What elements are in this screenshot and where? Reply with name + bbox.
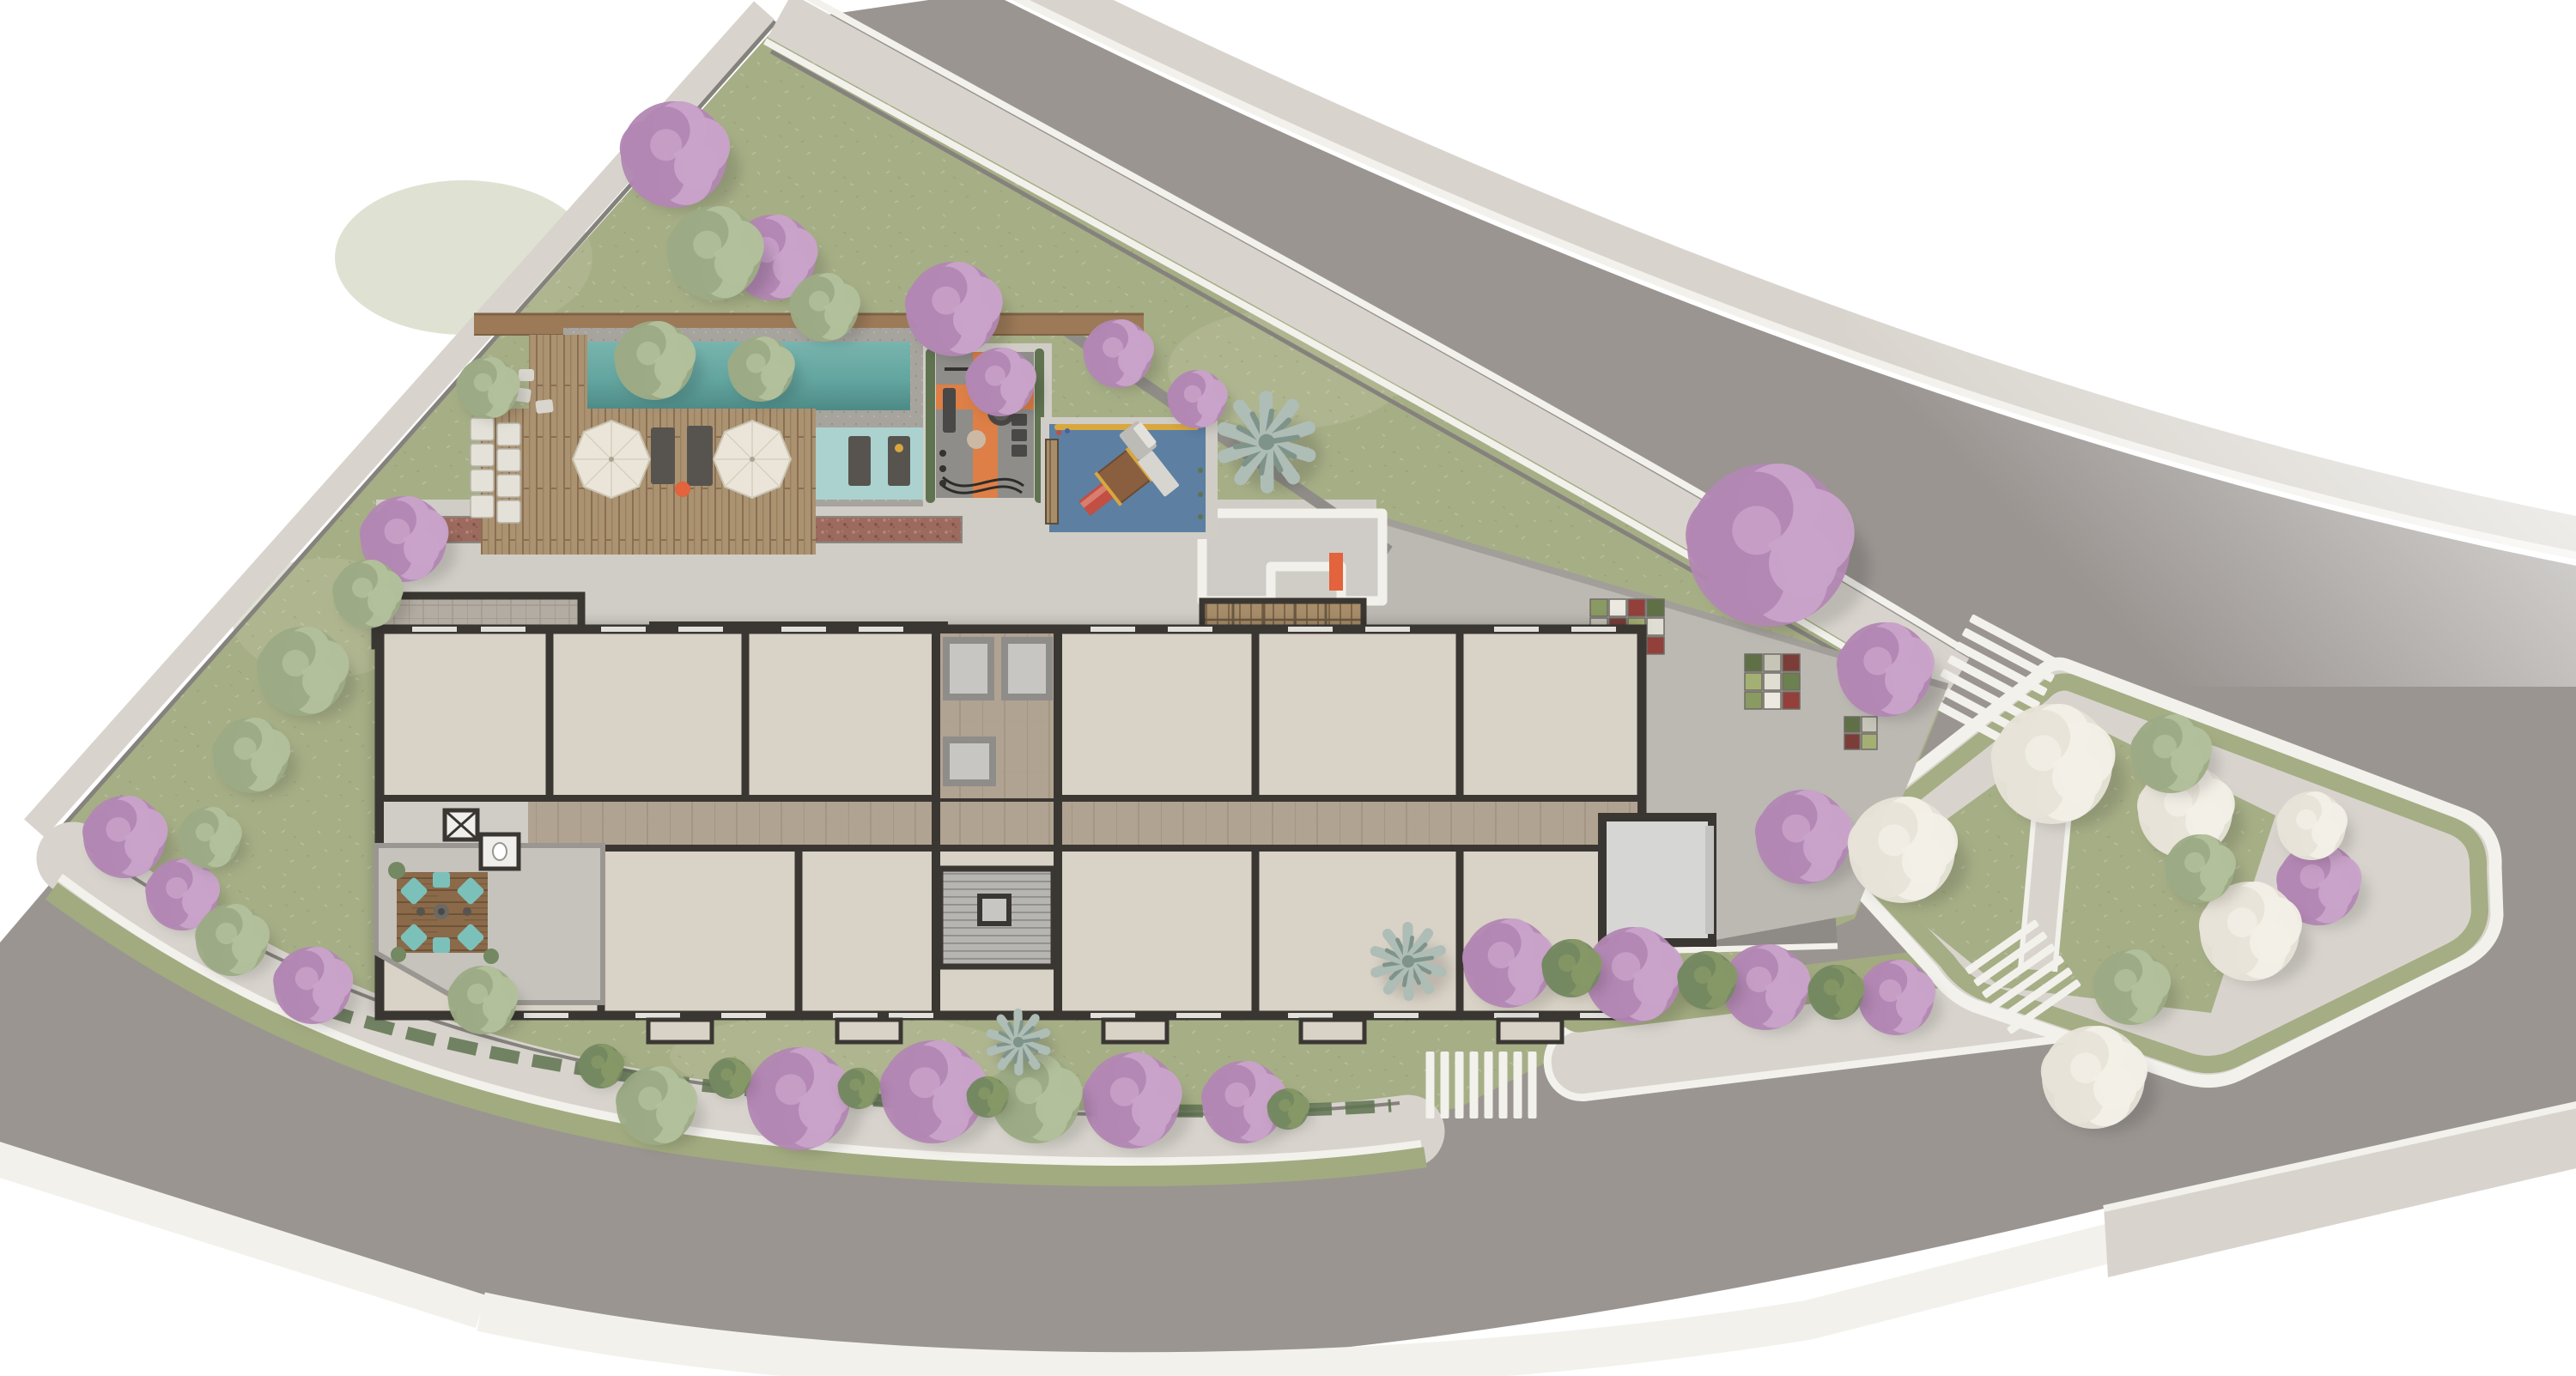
site-plan-rendering bbox=[0, 0, 2576, 1376]
window-opening bbox=[1288, 1013, 1333, 1018]
window-opening bbox=[1288, 627, 1333, 632]
wet-deck-lounger-1 bbox=[848, 436, 871, 486]
window-opening bbox=[781, 627, 826, 632]
balcony-sill bbox=[1498, 1020, 1562, 1042]
elevator-shaft-3 bbox=[943, 736, 996, 786]
window-opening bbox=[1168, 627, 1212, 632]
gym-beanbag bbox=[967, 430, 986, 449]
gym-hedge-left bbox=[926, 349, 935, 503]
balcony-sill bbox=[1103, 1020, 1167, 1042]
solarium-pad bbox=[471, 418, 494, 440]
wet-deck-lounger-2 bbox=[888, 436, 910, 486]
deck-lounger-1 bbox=[651, 427, 675, 484]
window-opening bbox=[1091, 1013, 1135, 1018]
window-opening bbox=[1494, 1013, 1539, 1018]
balcony-sill bbox=[648, 1020, 712, 1042]
solarium-pad bbox=[471, 444, 494, 466]
playground bbox=[1041, 417, 1218, 541]
balcony-sill bbox=[837, 1020, 901, 1042]
garden-bed bbox=[1745, 654, 1800, 709]
entrance-door bbox=[1329, 553, 1343, 591]
elevator-shaft-1 bbox=[943, 637, 994, 700]
solarium-pad bbox=[471, 495, 494, 518]
side-table-orange bbox=[675, 482, 690, 497]
window-opening bbox=[859, 627, 903, 632]
window-opening bbox=[481, 627, 526, 632]
balcony-sill bbox=[1301, 1020, 1364, 1042]
elevator-shaft-2 bbox=[1001, 637, 1053, 700]
solarium-pad bbox=[471, 470, 494, 492]
central-corridor bbox=[384, 798, 1637, 848]
solarium-pad bbox=[497, 449, 520, 471]
play-bench bbox=[1046, 439, 1058, 524]
gym-bench bbox=[943, 388, 956, 433]
sun-umbrella-2 bbox=[714, 421, 791, 498]
window-opening bbox=[1365, 627, 1410, 632]
service-elevator-hatch bbox=[445, 810, 477, 840]
window-opening bbox=[1176, 1013, 1221, 1018]
window-opening bbox=[635, 1013, 680, 1018]
window-opening bbox=[412, 627, 457, 632]
staircase bbox=[940, 869, 1054, 967]
window-opening bbox=[1494, 627, 1539, 632]
solarium-pad bbox=[497, 500, 520, 523]
site-plan-page bbox=[0, 0, 2576, 1376]
window-opening bbox=[721, 1013, 766, 1018]
window-opening bbox=[833, 1013, 878, 1018]
window-opening bbox=[524, 1013, 568, 1018]
top-right-fade bbox=[1846, 0, 2576, 687]
solarium-pad bbox=[497, 475, 520, 497]
deck-lounger-2 bbox=[687, 426, 713, 486]
window-opening bbox=[601, 627, 646, 632]
solarium-pad bbox=[497, 423, 520, 446]
window-opening bbox=[1374, 1013, 1419, 1018]
window-opening bbox=[1091, 627, 1135, 632]
window-opening bbox=[889, 1013, 933, 1018]
sun-umbrella-1 bbox=[573, 421, 650, 498]
entrance-vestibule bbox=[1602, 817, 1714, 943]
accessible-toilet bbox=[481, 834, 519, 869]
window-opening bbox=[678, 627, 723, 632]
window-opening bbox=[1571, 627, 1616, 632]
